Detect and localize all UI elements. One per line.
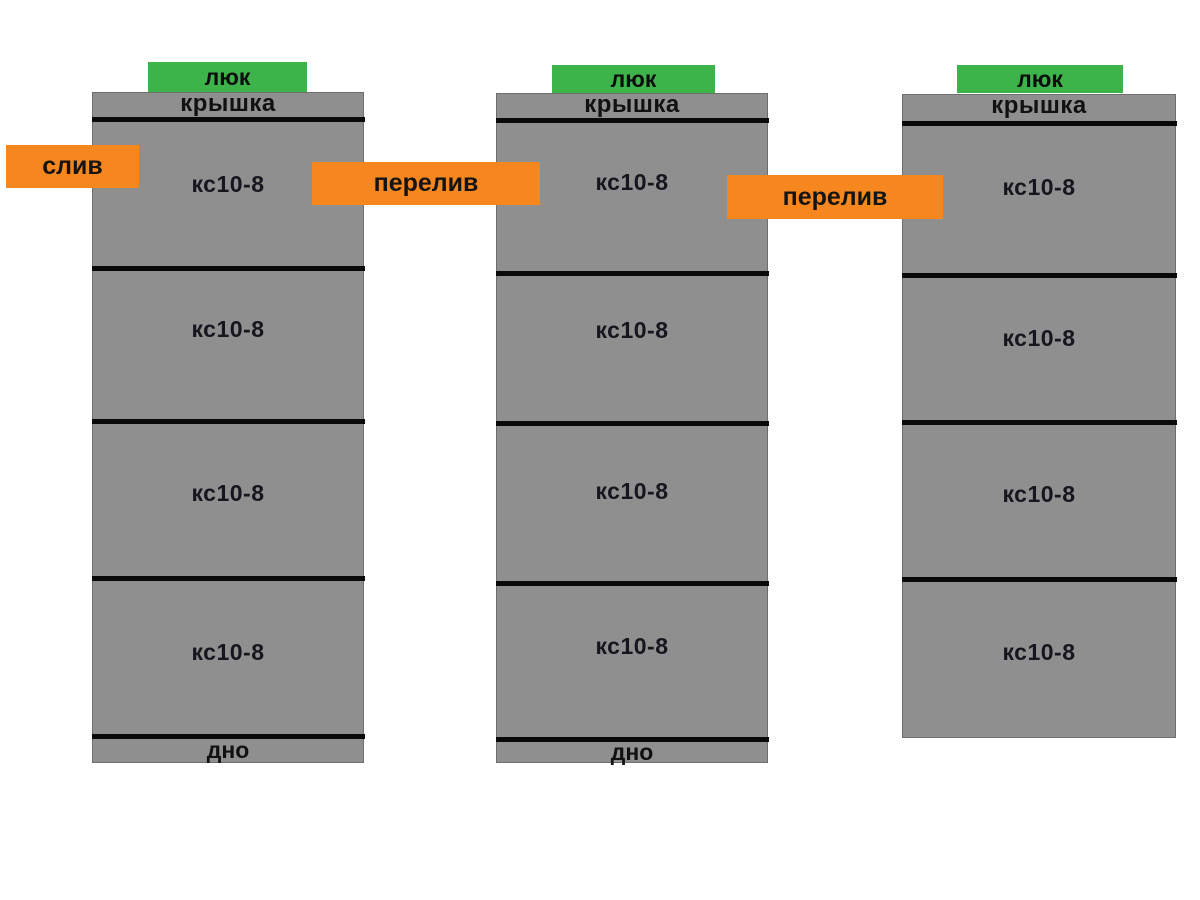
manhole-hatch-label-3: люк	[957, 65, 1123, 93]
joint-line	[92, 266, 365, 271]
joint-line	[902, 577, 1177, 582]
overflow-pipe-label-2: перелив	[727, 175, 943, 219]
cover-label-3: крышка	[903, 92, 1175, 120]
diagram-canvas: люк крышка кс10-8 кс10-8 кс10-8 кс10-8 д…	[0, 0, 1200, 900]
ring-label: кс10-8	[497, 316, 767, 344]
manhole-hatch-label-1: люк	[148, 62, 307, 92]
ring-label: кс10-8	[903, 173, 1175, 201]
ring-label: кс10-8	[93, 638, 363, 666]
joint-line	[496, 581, 769, 586]
ring-label: кс10-8	[903, 480, 1175, 508]
joint-line	[496, 421, 769, 426]
manhole-hatch-label-2: люк	[552, 65, 715, 93]
ring-label: кс10-8	[93, 315, 363, 343]
joint-line	[496, 271, 769, 276]
ring-label: кс10-8	[497, 477, 767, 505]
bottom-label-1: дно	[93, 738, 363, 762]
ring-label: кс10-8	[903, 324, 1175, 352]
joint-line	[902, 121, 1177, 126]
cover-label-1: крышка	[93, 90, 363, 118]
overflow-pipe-label-1: перелив	[312, 162, 540, 205]
joint-line	[92, 117, 365, 122]
well-column-3: крышка кс10-8 кс10-8 кс10-8 кс10-8	[902, 94, 1176, 738]
joint-line	[902, 420, 1177, 425]
ring-label: кс10-8	[497, 632, 767, 660]
joint-line	[92, 419, 365, 424]
cover-label-2: крышка	[497, 91, 767, 119]
ring-label: кс10-8	[93, 479, 363, 507]
ring-label: кс10-8	[903, 638, 1175, 666]
joint-line	[496, 118, 769, 123]
joint-line	[92, 576, 365, 581]
bottom-label-2: дно	[497, 740, 767, 764]
drain-pipe-label: слив	[6, 145, 139, 188]
joint-line	[902, 273, 1177, 278]
